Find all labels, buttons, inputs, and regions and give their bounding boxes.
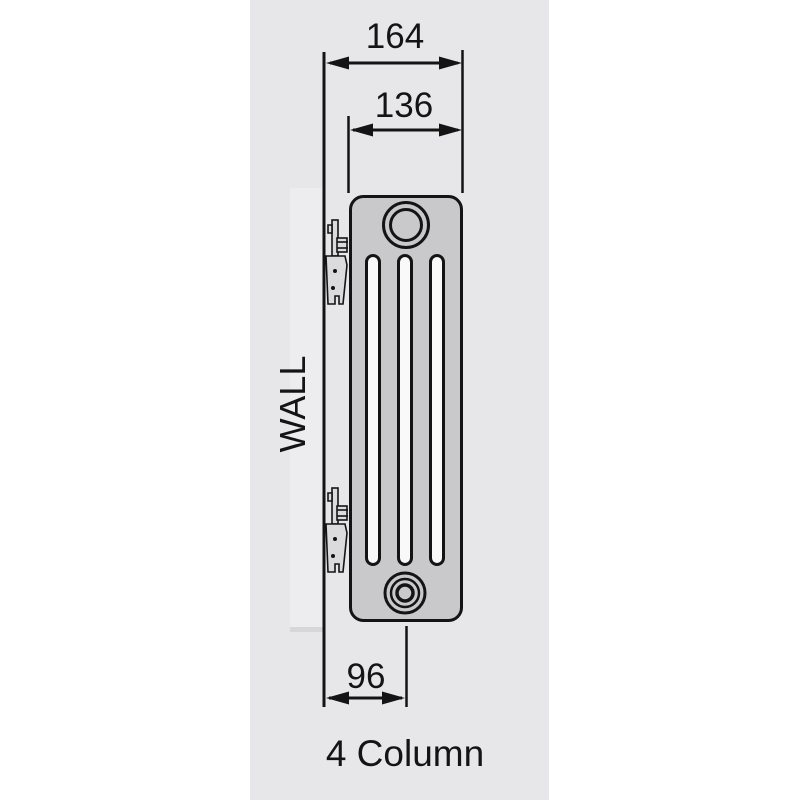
wall-label: WALL xyxy=(272,356,313,453)
column-slot-2 xyxy=(399,256,412,565)
column-slot-3 xyxy=(431,256,444,565)
dimension-164-label: 164 xyxy=(366,17,424,56)
column-slot-1 xyxy=(367,256,380,565)
caption: 4 Column xyxy=(326,733,484,774)
radiator-dimension-diagram: WALL 164 xyxy=(0,0,800,800)
dimension-96-label: 96 xyxy=(347,657,386,696)
dimension-136-label: 136 xyxy=(375,86,433,125)
wall-bar-bottom-edge xyxy=(290,627,324,632)
radiator xyxy=(351,197,462,621)
diagram-canvas: WALL 164 xyxy=(0,0,800,800)
